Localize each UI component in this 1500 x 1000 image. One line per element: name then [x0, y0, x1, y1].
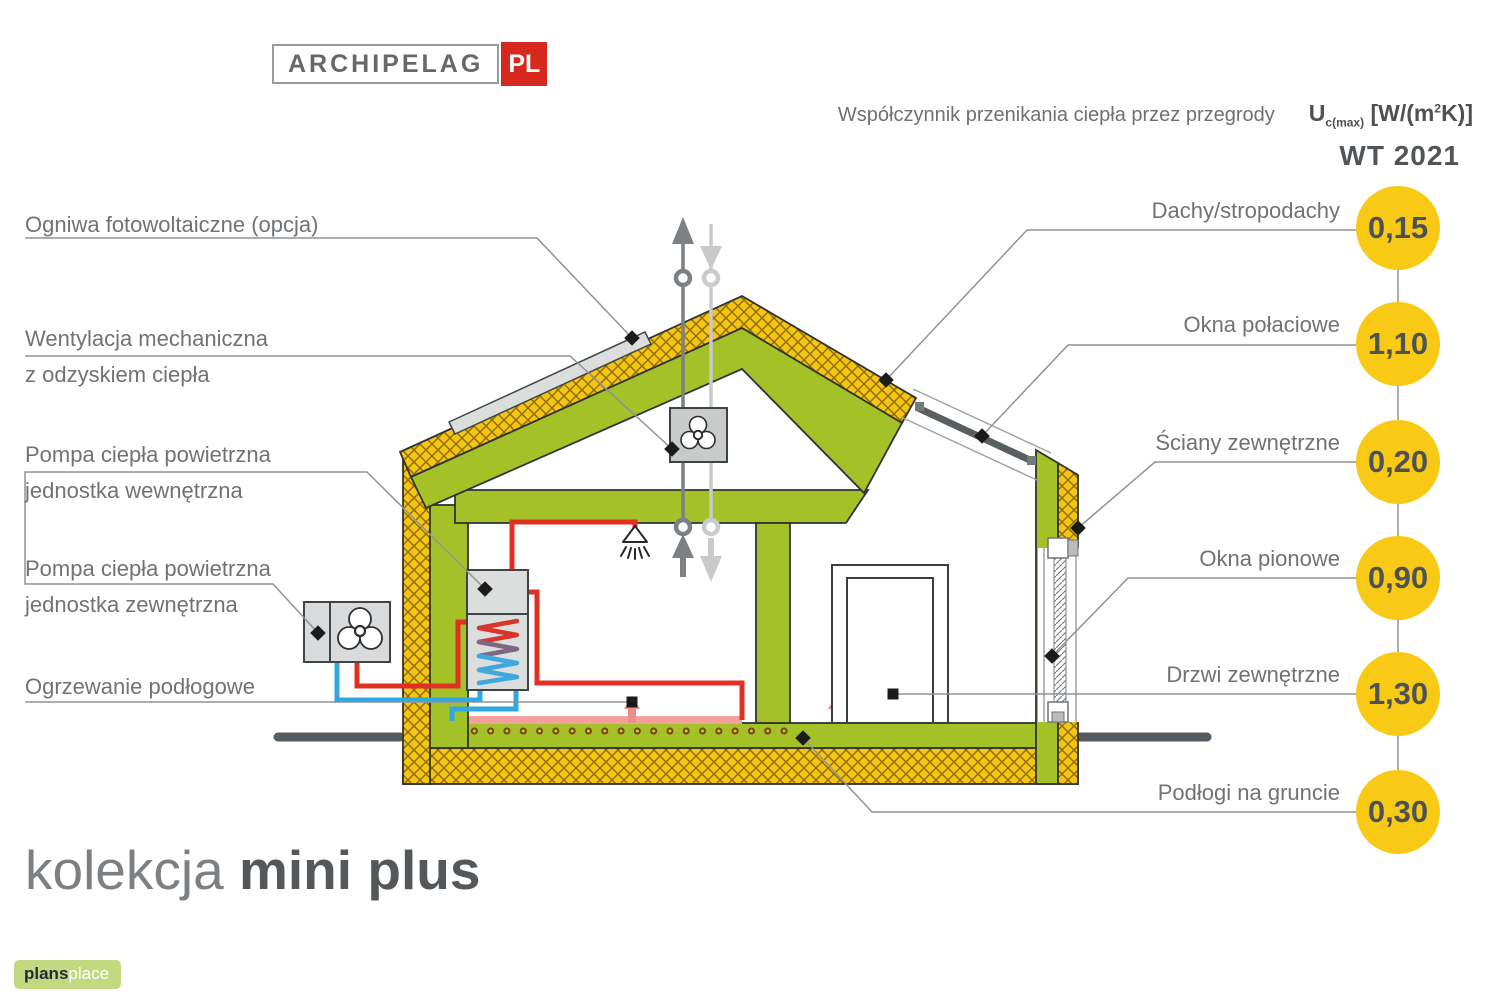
annotation-floor-heating: Ogrzewanie podłogowe	[25, 674, 255, 700]
u-subscript: c(max)	[1325, 116, 1364, 130]
ventilation-ducts	[672, 217, 722, 582]
collection-title: kolekcja mini plus	[25, 838, 480, 902]
collection-prefix: kolekcja	[25, 839, 224, 901]
plansplace-light: place	[68, 964, 109, 983]
ceiling	[455, 490, 868, 523]
partition-wall	[756, 523, 790, 723]
u-value-badge-roof-windows: 1,10	[1356, 302, 1440, 386]
u-value-badge-external-doors: 1,30	[1356, 652, 1440, 736]
u-value-badge-vertical-windows: 0,90	[1356, 536, 1440, 620]
annotation-line: Wentylacja mechaniczna	[25, 326, 268, 352]
u-unit-close: K)]	[1441, 100, 1473, 126]
u-value-badge-external-walls: 0,20	[1356, 420, 1440, 504]
annotation-line: Pompa ciepła powietrzna	[25, 556, 271, 582]
header-subtitle: Współczynnik przenikania ciepła przez pr…	[838, 104, 1275, 127]
plansplace-logo: plansplace	[14, 960, 121, 989]
annotation-ventilation: Wentylacja mechaniczna z odzyskiem ciepł…	[25, 326, 268, 388]
annotation-line: jednostka wewnętrzna	[25, 478, 271, 504]
roof-insulation	[400, 296, 916, 508]
annotation-line: Ogrzewanie podłogowe	[25, 674, 255, 700]
annotation-photovoltaic: Ogniwa fotowoltaiczne (opcja)	[25, 212, 318, 238]
u-label-external-walls: Ściany zewnętrzne	[1155, 430, 1340, 456]
u-unit-open: [W/(m	[1364, 100, 1434, 126]
u-label-external-doors: Drzwi zewnętrzne	[1166, 662, 1340, 688]
archipelag-logo-text: ARCHIPELAG	[288, 50, 483, 79]
archipelag-logo-box: ARCHIPELAG	[272, 44, 499, 84]
annotation-heat-pump-indoor: Pompa ciepła powietrzna jednostka wewnęt…	[25, 442, 271, 504]
standard-label: WT 2021	[1339, 140, 1460, 172]
ventilation-fan-icon	[670, 408, 727, 462]
annotation-line: Ogniwa fotowoltaiczne (opcja)	[25, 212, 318, 238]
u-value-badge-roofs: 0,15	[1356, 186, 1440, 270]
u-label-ground-floors: Podłogi na gruncie	[1158, 780, 1340, 806]
infographic-house-section: ARCHIPELAG PL Współczynnik przenikania c…	[0, 0, 1500, 1000]
plansplace-bold: plans	[24, 964, 68, 983]
u-label-vertical-windows: Okna pionowe	[1199, 546, 1340, 572]
u-coefficient-formula: Uc(max) [W/(m2K)]	[1309, 100, 1473, 130]
annotation-line: Pompa ciepła powietrzna	[25, 442, 271, 468]
u-symbol: U	[1309, 100, 1326, 126]
heat-pump-indoor-icon	[467, 570, 528, 690]
shower-icon	[621, 526, 649, 559]
collection-name: mini plus	[239, 839, 480, 901]
archipelag-logo-pl: PL	[501, 42, 547, 86]
floor-insulation	[403, 748, 1078, 784]
archipelag-logo: ARCHIPELAG PL	[272, 42, 547, 86]
header: Współczynnik przenikania ciepła przez pr…	[838, 100, 1473, 130]
annotation-heat-pump-outdoor: Pompa ciepła powietrzna jednostka zewnęt…	[25, 556, 271, 618]
floor-slab	[443, 723, 1072, 748]
annotation-line: z odzyskiem ciepła	[25, 362, 268, 388]
u-label-roofs: Dachy/stropodachy	[1152, 198, 1340, 224]
annotation-line: jednostka zewnętrzna	[25, 592, 271, 618]
u-label-roof-windows: Okna połaciowe	[1183, 312, 1340, 338]
u-value-badge-ground-floors: 0,30	[1356, 770, 1440, 854]
